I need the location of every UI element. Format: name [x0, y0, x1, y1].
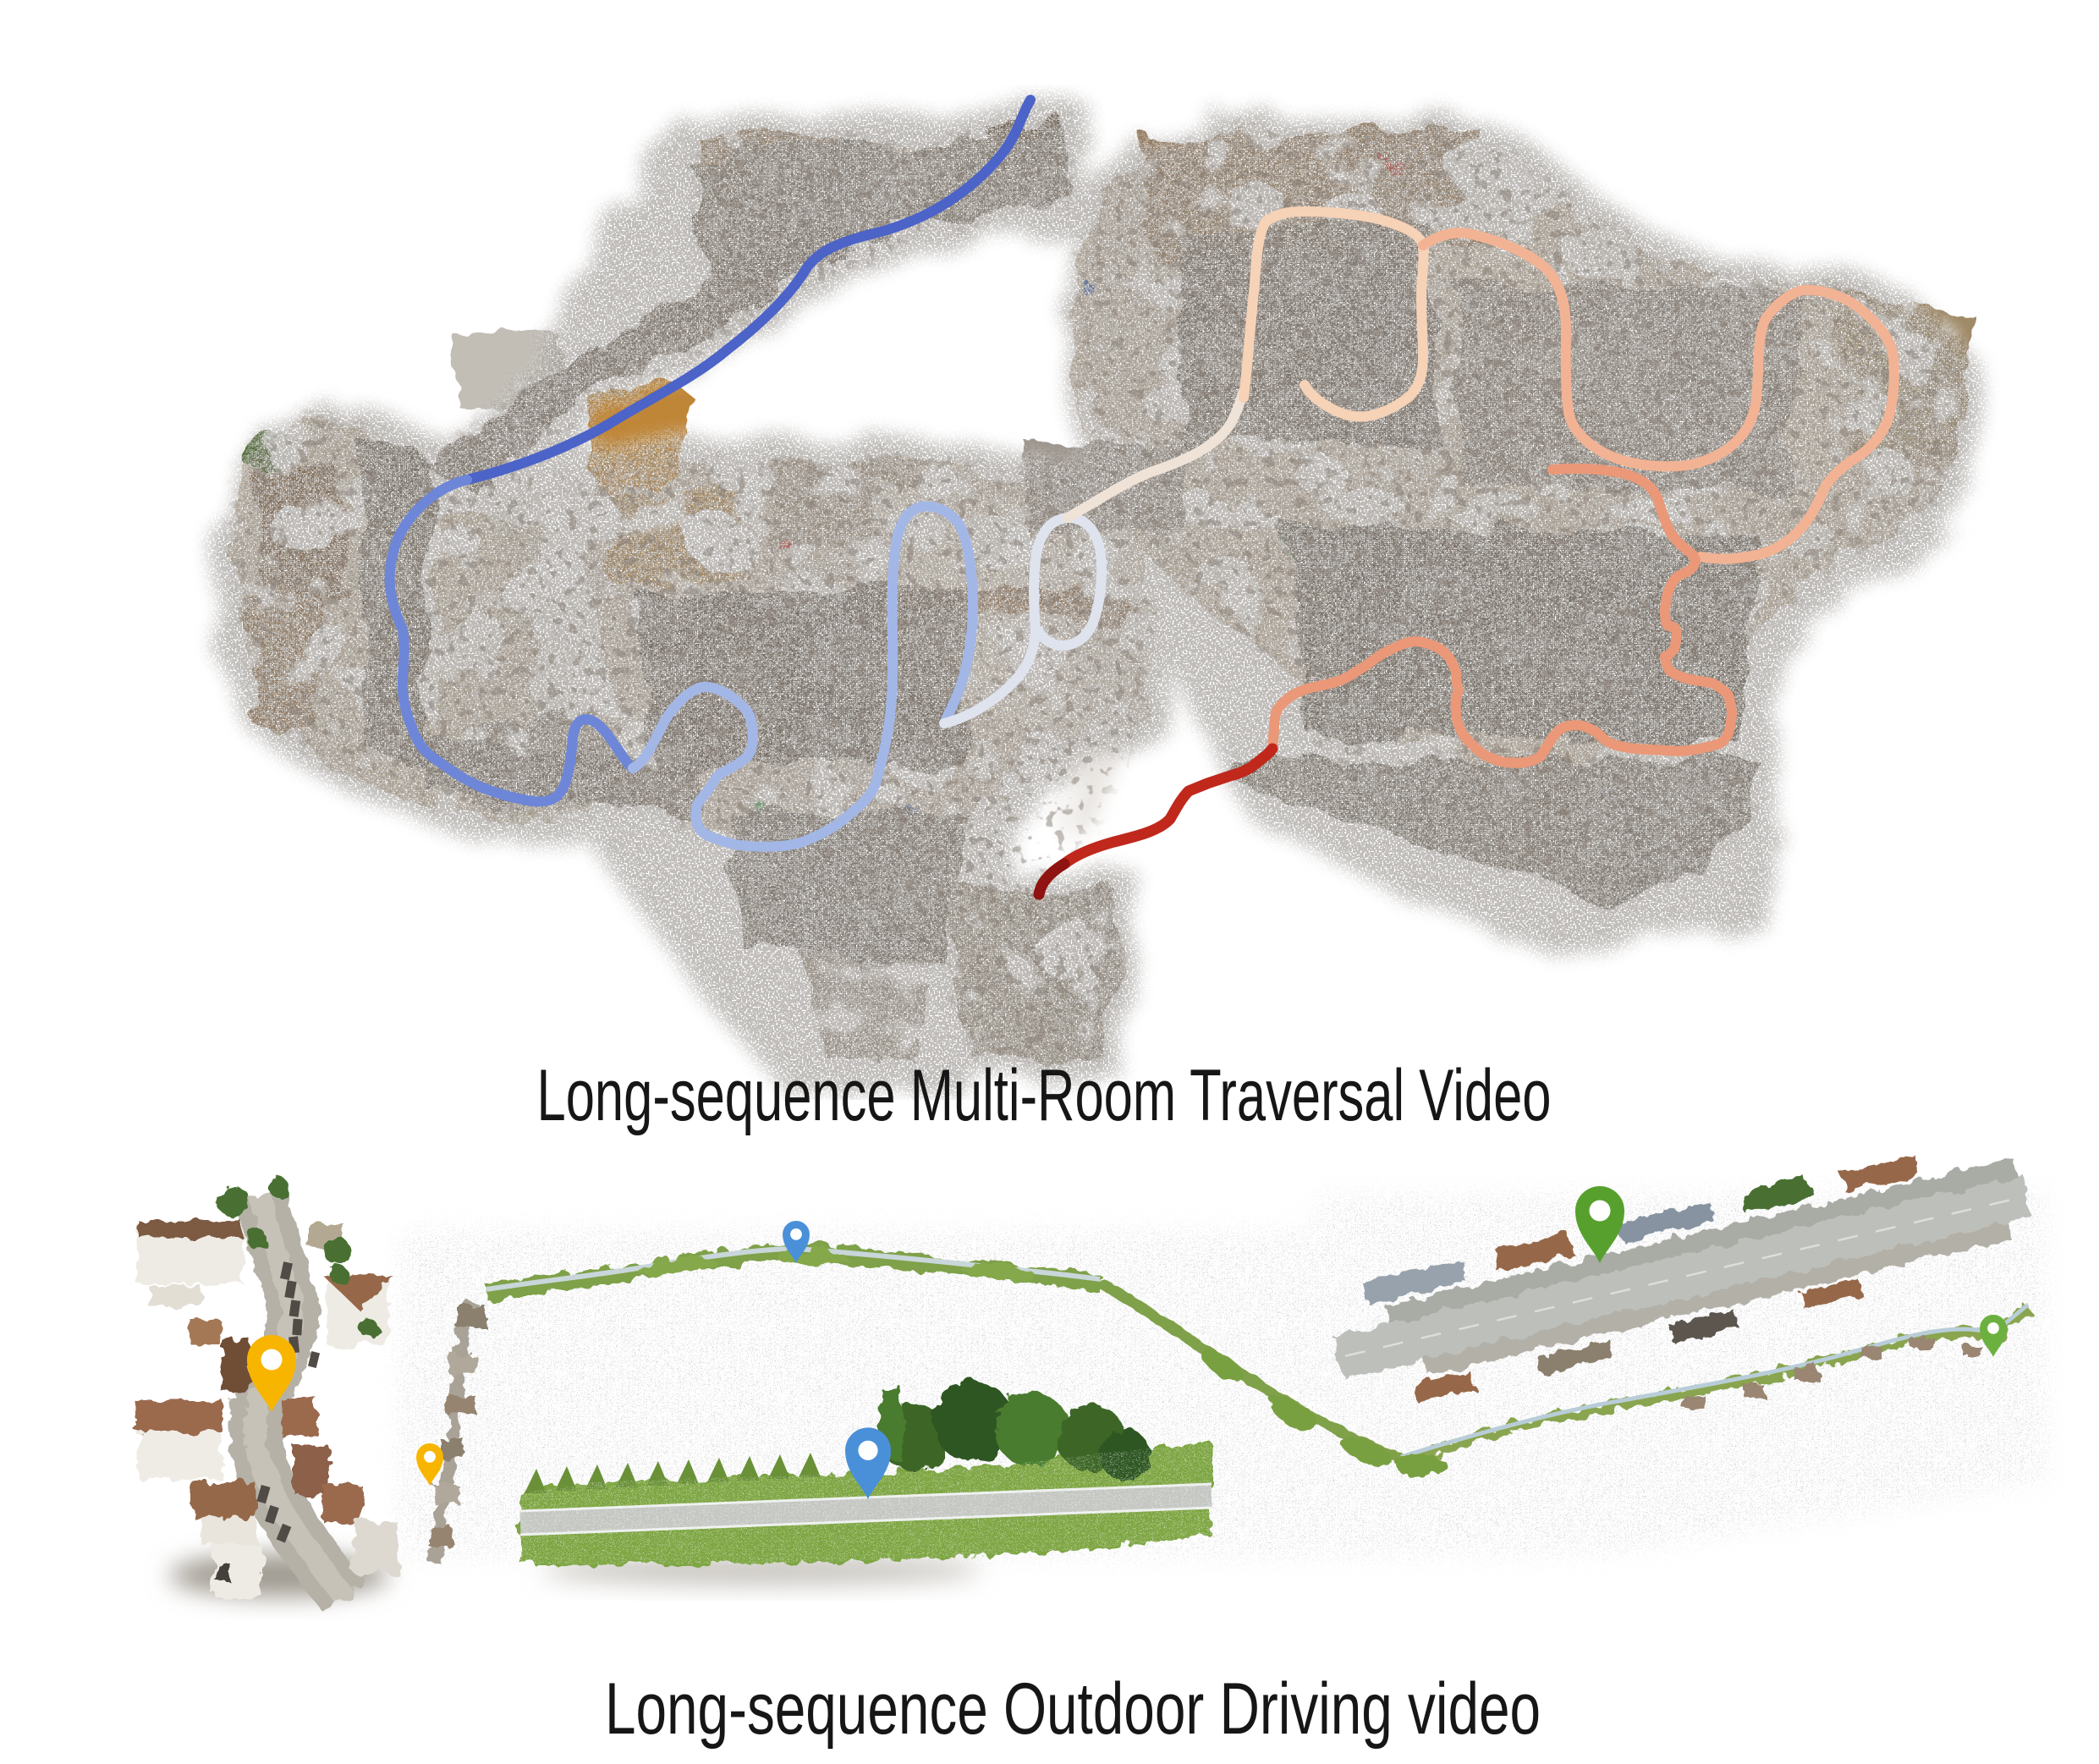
- svg-text:Long-sequence Outdoor Driving: Long-sequence Outdoor Driving video: [605, 1668, 1541, 1750]
- svg-text:Long-sequence Multi-Room Trave: Long-sequence Multi-Room Traversal Video: [537, 1055, 1552, 1136]
